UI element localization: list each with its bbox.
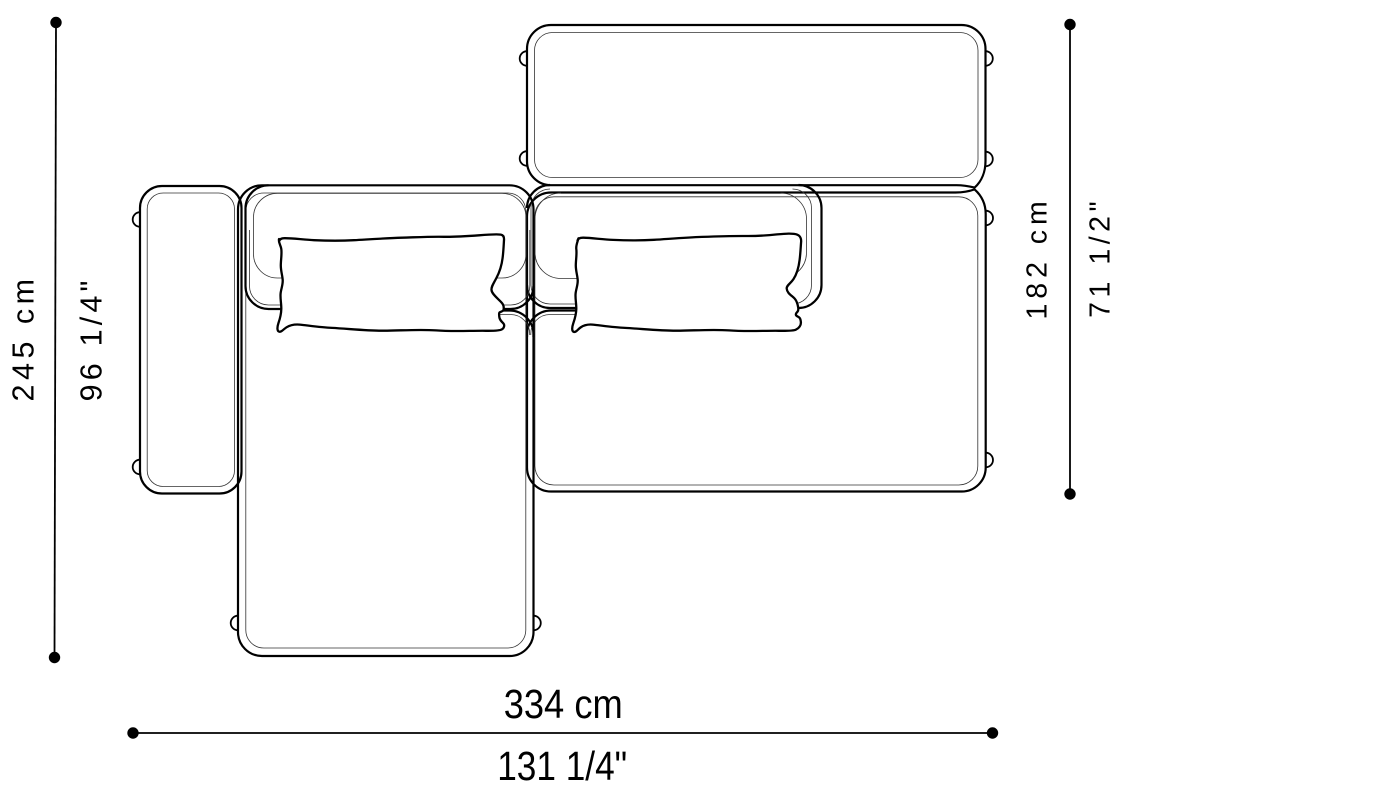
svg-text:131 1/4": 131 1/4" [497, 743, 627, 789]
svg-text:334 cm: 334 cm [504, 681, 623, 727]
